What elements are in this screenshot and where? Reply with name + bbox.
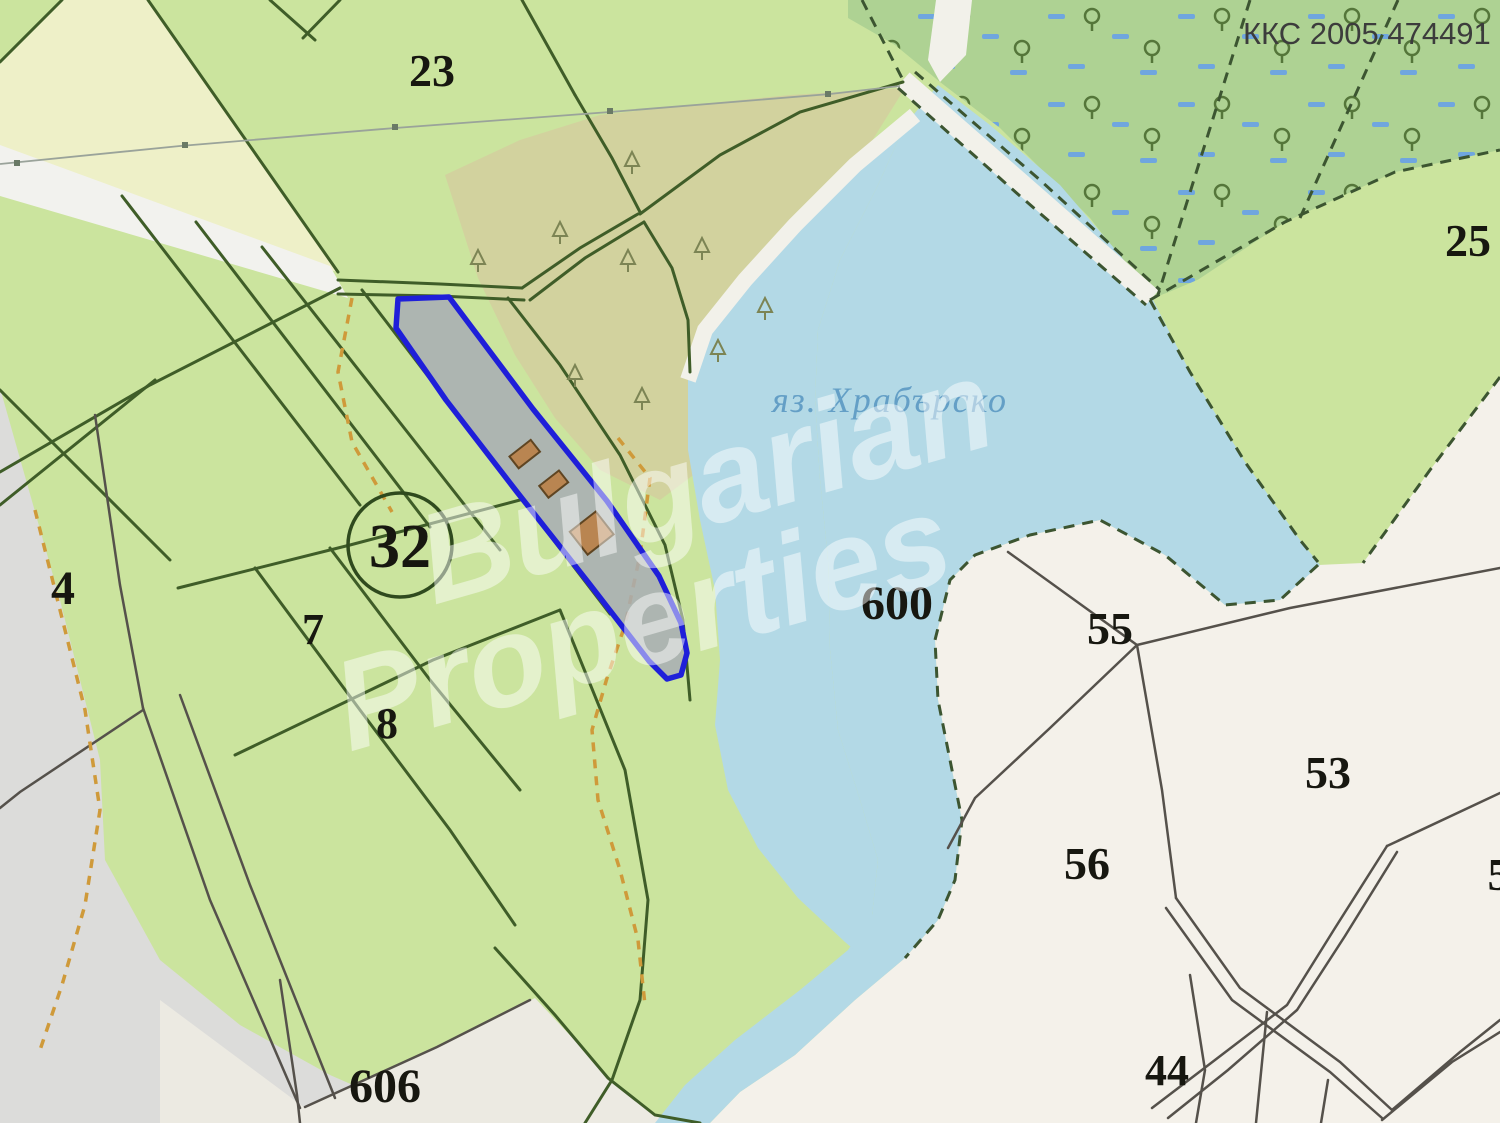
parcel-label-56: 56 [1064, 838, 1110, 889]
parcel-label-44: 44 [1145, 1046, 1189, 1095]
parcel-label-4: 4 [51, 562, 75, 615]
parcel-label-25: 25 [1445, 215, 1491, 266]
parcel-label-53: 53 [1305, 747, 1351, 798]
parcel-label-5-partial: 5 [1488, 849, 1500, 900]
cadastral-map: 23 25 32 4 7 8 606 600 55 53 56 44 5 яз.… [0, 0, 1500, 1123]
parcel-label-55: 55 [1087, 603, 1133, 654]
parcel-label-606: 606 [349, 1060, 421, 1113]
map-code: ККС 2005 474491 [1243, 16, 1491, 51]
cadastral-map-screenshot: 23 25 32 4 7 8 606 600 55 53 56 44 5 яз.… [0, 0, 1500, 1123]
parcel-label-23: 23 [409, 45, 455, 96]
